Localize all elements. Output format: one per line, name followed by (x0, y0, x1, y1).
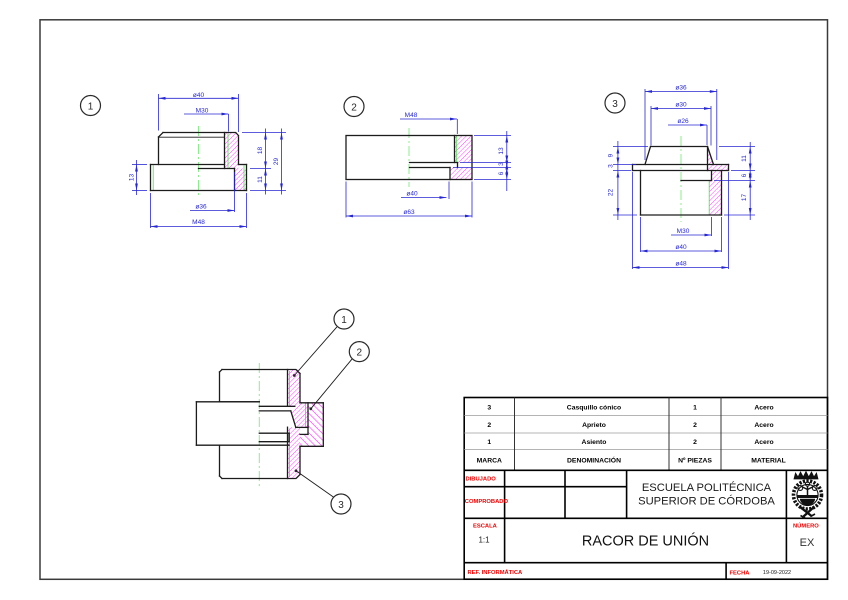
svg-text:1:1: 1:1 (478, 536, 490, 545)
svg-text:ø40: ø40 (406, 191, 418, 198)
svg-text:COMPROBADO: COMPROBADO (465, 499, 509, 505)
svg-text:EX: EX (800, 537, 815, 549)
svg-text:DENOMINACIÓN: DENOMINACIÓN (567, 456, 621, 465)
svg-text:Nº PIEZAS: Nº PIEZAS (678, 458, 712, 465)
svg-text:SUPERIOR DE CÓRDOBA: SUPERIOR DE CÓRDOBA (638, 495, 775, 508)
svg-text:M48: M48 (192, 219, 205, 226)
svg-text:MARCA: MARCA (477, 458, 502, 465)
svg-text:ø40: ø40 (193, 92, 205, 99)
svg-text:ø36: ø36 (195, 204, 207, 211)
svg-text:9: 9 (608, 153, 615, 157)
svg-text:Asiento: Asiento (582, 439, 607, 446)
svg-text:Acero: Acero (754, 422, 773, 429)
svg-text:6: 6 (498, 171, 505, 175)
svg-text:22: 22 (608, 189, 615, 197)
svg-text:19-09-2022: 19-09-2022 (763, 570, 791, 576)
svg-text:RACOR DE UNIÓN: RACOR DE UNIÓN (582, 533, 709, 550)
svg-text:3: 3 (612, 99, 618, 110)
svg-text:11: 11 (257, 176, 264, 183)
svg-text:DIBUJADO: DIBUJADO (466, 477, 497, 483)
svg-text:Acero: Acero (754, 439, 773, 446)
svg-text:3: 3 (487, 405, 491, 412)
svg-text:M30: M30 (196, 107, 209, 114)
svg-text:1: 1 (341, 315, 347, 326)
svg-text:FECHA: FECHA (730, 571, 751, 577)
svg-text:MATERIAL: MATERIAL (751, 458, 786, 465)
svg-text:1: 1 (693, 405, 697, 412)
svg-text:M30: M30 (677, 228, 690, 235)
svg-text:17: 17 (741, 194, 748, 202)
svg-text:13: 13 (129, 174, 136, 182)
svg-text:13: 13 (498, 147, 505, 155)
svg-text:ESCALA: ESCALA (473, 524, 498, 530)
svg-text:ø26: ø26 (677, 118, 689, 125)
svg-text:M48: M48 (405, 112, 418, 119)
svg-text:ø30: ø30 (675, 102, 687, 109)
svg-text:3: 3 (338, 500, 344, 511)
svg-text:6: 6 (741, 173, 748, 177)
svg-text:2: 2 (693, 422, 697, 429)
svg-text:Casquillo cónico: Casquillo cónico (567, 405, 621, 412)
svg-text:2: 2 (351, 103, 357, 114)
svg-text:29: 29 (273, 158, 280, 166)
svg-text:NÚMERO: NÚMERO (793, 523, 819, 530)
svg-text:ESCUELA POLITÉCNICA: ESCUELA POLITÉCNICA (642, 481, 772, 494)
svg-text:2: 2 (357, 348, 363, 359)
svg-text:Aprieto: Aprieto (582, 422, 606, 429)
svg-text:ø48: ø48 (675, 261, 687, 268)
svg-text:2: 2 (693, 439, 697, 446)
svg-text:3: 3 (498, 162, 505, 166)
svg-text:11: 11 (741, 155, 748, 162)
svg-text:18: 18 (257, 147, 264, 155)
svg-text:REF. INFORMÁTICA: REF. INFORMÁTICA (468, 569, 524, 576)
svg-text:2: 2 (487, 422, 491, 429)
svg-text:1: 1 (487, 439, 491, 446)
svg-text:ø63: ø63 (403, 209, 415, 216)
svg-text:3: 3 (608, 164, 615, 168)
svg-text:1: 1 (88, 102, 94, 113)
svg-text:ø36: ø36 (675, 85, 687, 92)
svg-text:ø40: ø40 (675, 244, 687, 251)
svg-text:Acero: Acero (754, 405, 773, 412)
